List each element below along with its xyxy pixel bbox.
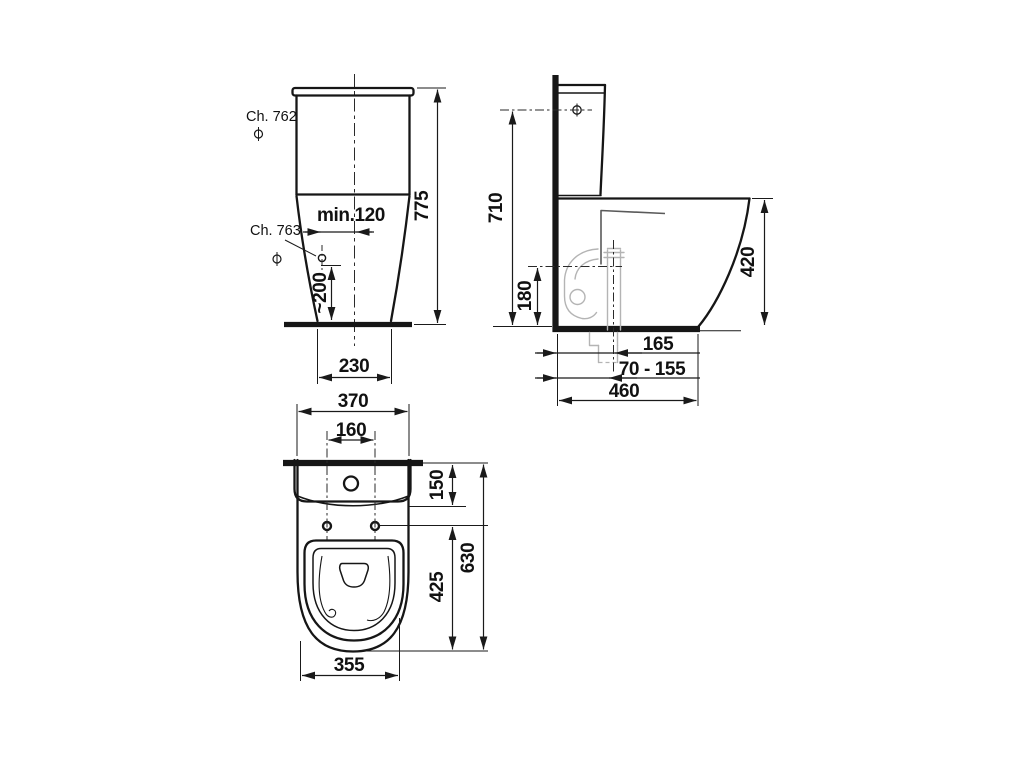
dim-label-160: 160	[336, 420, 367, 441]
front-elevation-view: Ch. 762 Ch. 763 min.120 ~200 775	[246, 74, 446, 384]
cistern-lid	[293, 88, 414, 96]
side-section-view: 710 180 420 165 70 - 155 460	[486, 75, 773, 406]
ch762-position-marker	[255, 127, 263, 141]
trap-outlet-pipework	[565, 249, 625, 363]
dim-label-460: 460	[609, 381, 640, 402]
cistern-front-side	[601, 85, 606, 195]
technical-drawing-page: Ch. 762 Ch. 763 min.120 ~200 775	[0, 0, 1024, 768]
flush-channel-section	[601, 211, 665, 265]
cistern-plan-outline	[295, 460, 411, 502]
ch763-position-marker	[273, 252, 281, 266]
dim-label-355: 355	[334, 655, 365, 676]
ref-label-ch762: Ch. 762	[246, 109, 297, 125]
dim-label-165: 165	[643, 334, 674, 355]
dim-label-180: 180	[515, 281, 536, 312]
dim-label-630: 630	[458, 543, 479, 574]
dim-label-min120: min.120	[317, 205, 385, 226]
water-edge-left	[319, 556, 336, 617]
dim-label-420: 420	[738, 247, 759, 278]
flush-button	[344, 477, 358, 491]
dim-label-370: 370	[338, 391, 369, 412]
dim-label-425: 425	[427, 571, 448, 602]
dim-label-230: 230	[339, 356, 370, 377]
cistern-body-sides	[297, 96, 410, 195]
ch763-leader-line	[285, 240, 316, 256]
dim-label-775: 775	[412, 190, 433, 221]
dim-label-710: 710	[486, 193, 507, 224]
water-edge-right	[367, 556, 390, 621]
dim-label-200: ~200	[310, 272, 331, 313]
dim-label-150: 150	[427, 470, 448, 501]
seat-ring-inner	[313, 549, 395, 631]
drain-opening	[340, 564, 369, 588]
wc-dimensional-drawing: Ch. 762 Ch. 763 min.120 ~200 775	[0, 0, 1024, 768]
pedestal-right-edge	[391, 196, 410, 321]
ref-label-ch763: Ch. 763	[250, 223, 301, 239]
dim-label-70-155: 70 - 155	[619, 359, 686, 380]
plan-view: 370 160 150 425 630 355	[283, 391, 488, 681]
